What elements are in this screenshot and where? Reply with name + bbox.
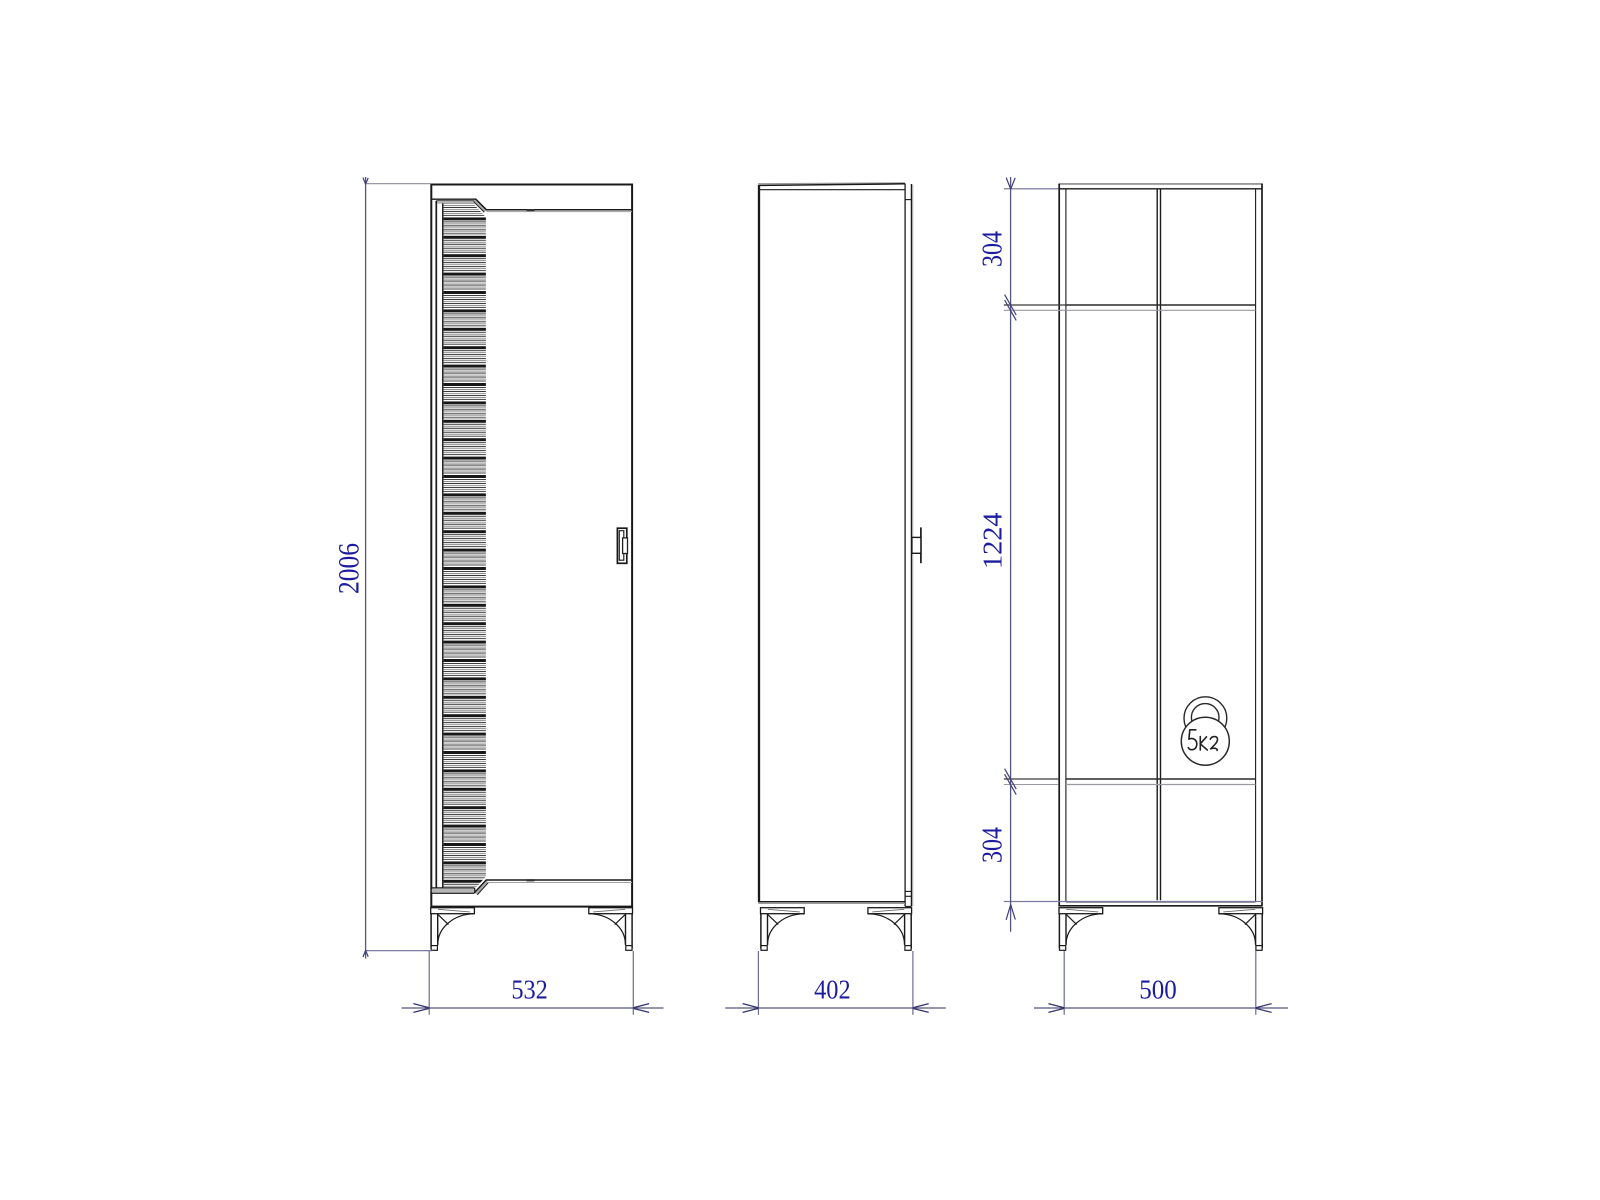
- svg-text:500: 500: [1139, 975, 1177, 1005]
- svg-text:304: 304: [978, 827, 1009, 863]
- svg-text:402: 402: [814, 974, 851, 1004]
- svg-text:2006: 2006: [333, 543, 366, 594]
- svg-text:304: 304: [978, 231, 1009, 267]
- svg-text:1224: 1224: [978, 512, 1008, 569]
- svg-text:532: 532: [511, 974, 548, 1004]
